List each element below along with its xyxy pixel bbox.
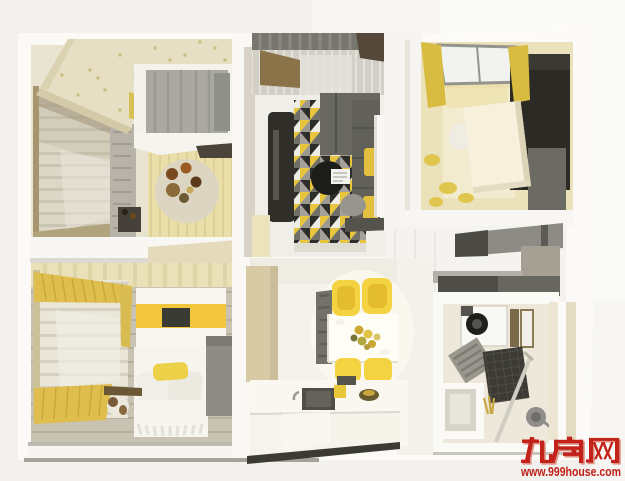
svg-text:www.999house.com: www.999house.com bbox=[520, 465, 621, 479]
